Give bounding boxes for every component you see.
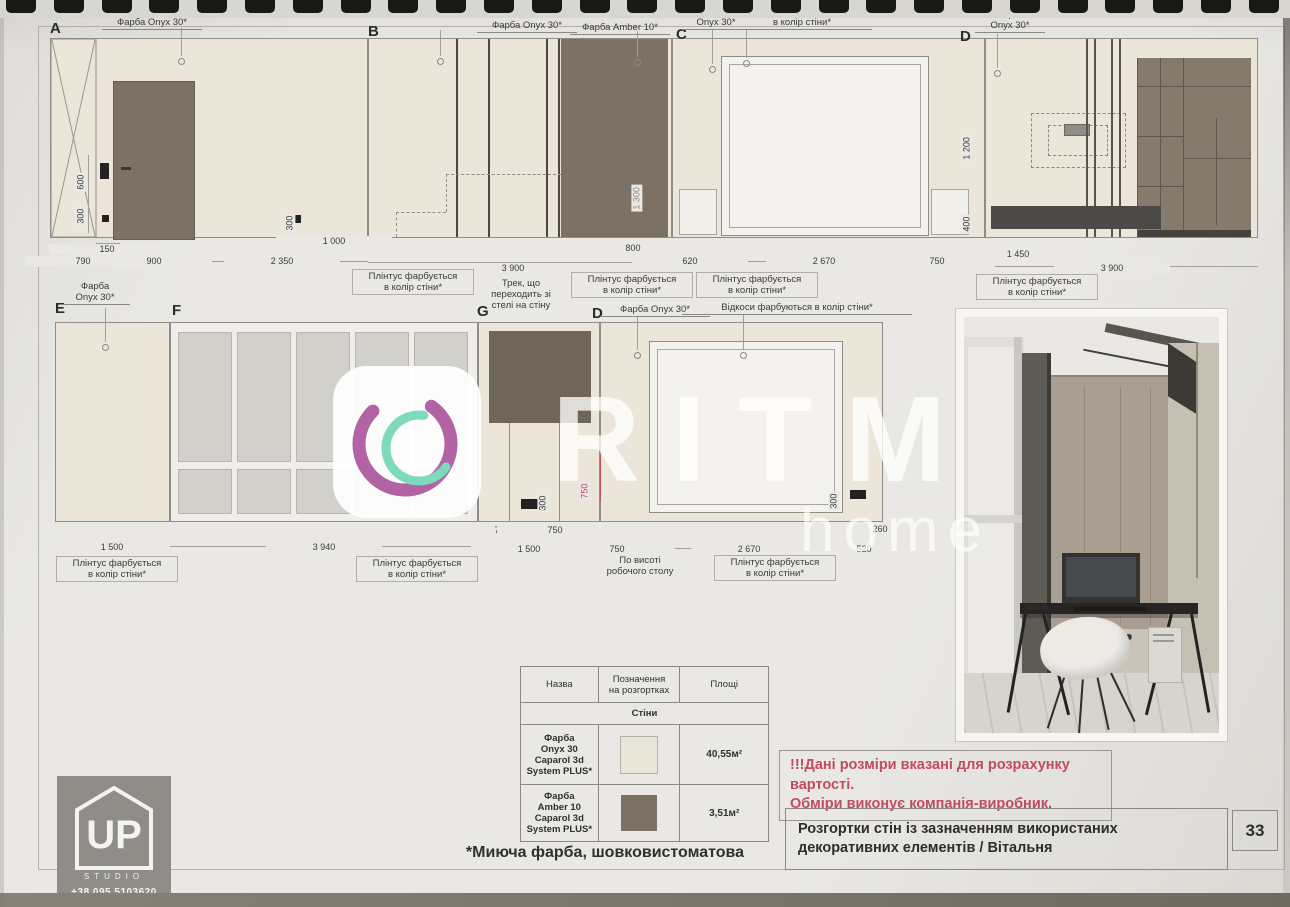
interior-photo [955,308,1228,742]
dim-label: 3 940 [266,542,382,553]
tv-console [991,206,1161,229]
dim-label: 750 [497,525,613,536]
leader-end-marker [994,70,1001,77]
elevation-b-drawing [368,38,672,238]
paint-label: Фарба Onyx 30* [477,20,577,33]
dim-label: 800 [575,243,691,254]
leader-end-marker [740,352,747,359]
binding-tab [723,0,753,13]
paint-label: Фарба Onyx 30* [60,281,130,305]
dashed-step [396,212,446,213]
door [113,81,195,240]
elevation-c-drawing [672,38,985,238]
dim-label: 750 [559,544,675,555]
callout-label: Плінтус фарбується в колір стіни* [571,272,693,298]
binding-tab [293,0,323,13]
callout-label: Плінтус фарбується в колір стіни* [696,272,818,298]
leader-end-marker [634,59,641,66]
table-header-name: Назва [521,667,599,702]
elevation-letter: D [960,28,971,46]
dimension-line [88,155,89,233]
callout-label: Плінтус фарбується в колір стіни* [976,274,1098,300]
swatch-amber [621,795,657,831]
binding-tab [1105,0,1135,13]
area-amber: 3,51м² [680,785,769,841]
scanned-sheet: RITM home [0,0,1290,907]
dimension-line [997,34,998,68]
binding-tab [771,0,801,13]
dashed-step [446,174,561,175]
dim-label-vertical: 300 [537,494,548,513]
elevation-letter: F [172,302,181,320]
paint-name-onyx: Фарба Onyx 30 Caparol 3d System PLUS* [521,725,599,784]
elevation-a-drawing [50,38,368,238]
paint-label: Фарба Onyx 30* [102,17,202,30]
table-header-area: Площі [680,667,769,702]
leader-end-marker [743,60,750,67]
warning-line-1: !!!Дані розміри вказані для розрахунку в… [790,756,1101,795]
sheet-title: Розгортки стін із зазначенням використан… [785,808,1228,870]
page-number: 33 [1232,810,1278,851]
binding-tab [341,0,371,13]
binding-tab [1249,0,1279,13]
sheet-title-text: Розгортки стін із зазначенням використан… [798,820,1215,858]
desk-edge [0,893,1290,907]
callout-label: Плінтус фарбується в колір стіни* [356,556,478,582]
page-edge-shadow [0,0,4,907]
callout-label: Плінтус фарбується в колір стіни* [352,269,474,295]
watermark-brand-text: RITM [552,378,978,500]
elevation-d-top-drawing [985,38,1258,238]
logo-studio-text: STUDIO [84,872,144,881]
binding-tab [1058,0,1088,13]
photo-monitor-screen [1066,557,1136,597]
leader-end-marker [709,66,716,73]
binding-tab [245,0,275,13]
dim-label-vertical: 600 [75,173,86,192]
niche-left [679,189,717,235]
leader-end-marker [102,344,109,351]
svg-text:UP: UP [86,813,142,857]
socket [100,163,109,179]
dimension-line [743,314,744,350]
binding-tab [436,0,466,13]
paint-footnote: *Миюча фарба, шовковистоматова [440,844,770,862]
leader-end-marker [437,58,444,65]
binding-tab [627,0,657,13]
dashed-step [446,174,447,212]
binding-tab [1153,0,1183,13]
wall-slat-line [558,39,560,237]
window-opening [721,56,929,236]
dimension-line [181,28,182,56]
binding-tab [484,0,514,13]
binding-tab [149,0,179,13]
wall-slat-line [456,39,458,237]
binding-tab [914,0,944,13]
photo-scene [964,317,1219,733]
elevation-letter: A [50,20,61,38]
dimension-line [712,30,713,64]
dim-label-vertical: 300 [284,214,295,233]
binding-tab [819,0,849,13]
up-studio-logo: UP STUDIO +38 095 5103620 [57,776,171,907]
elevation-letter: B [368,23,379,41]
binding-tab [6,0,36,13]
dim-label: 1 500 [54,542,170,553]
door-handle [121,167,131,170]
dim-label: 2 350 [224,256,340,267]
table-header-symbol: Позначення на розгортках [599,667,681,702]
binding-tab [532,0,562,13]
spiral-binding [0,0,1290,18]
paint-name-amber: Фарба Amber 10 Caparol 3d System PLUS* [521,785,599,841]
dim-label-vertical: 1 300 [631,185,642,212]
binding-tab [962,0,992,13]
paint-label: Відкоси фарбуються в колір стіни* [682,302,912,315]
dim-label: 2 670 [766,256,882,267]
dimension-line [440,30,441,56]
binding-tab [102,0,132,13]
dim-label-vertical: 300 [75,207,86,226]
dim-label: 150 [49,244,165,255]
dim-label-vertical: 400 [961,215,972,234]
photo-keyboard [1074,607,1146,611]
dimension-line [105,308,106,342]
binding-tab [1010,0,1040,13]
wall-slat-line [546,39,548,237]
shaft-x-brace [51,39,97,237]
ritm-logo-watermark [333,366,481,518]
dim-label-vertical: 1 200 [961,135,972,162]
amber-paint-panel [561,39,668,237]
dim-label: 2 670 [691,544,807,555]
leader-end-marker [634,352,641,359]
page-edge-shadow [1283,0,1290,907]
binding-tab [866,0,896,13]
binding-tab [675,0,705,13]
binding-tab [580,0,610,13]
dimension-line [637,316,638,350]
watermark-sub-text: home [800,500,991,562]
binding-tab [54,0,84,13]
dim-label: 1 000 [276,236,392,247]
area-onyx: 40,55м² [680,725,769,784]
callout-label: Плінтус фарбується в колір стіни* [56,556,178,582]
socket [102,215,109,222]
dim-label: 620 [632,256,748,267]
binding-tab [388,0,418,13]
note-label: Трек, що переходить зі стелі на стіну [465,278,577,312]
table-section-walls: Стіни [521,703,769,724]
leader-end-marker [178,58,185,65]
up-house-icon: UP [75,786,153,870]
binding-tab [1201,0,1231,13]
note-label: По висоті робочого столу [584,555,696,577]
wall-slat-line [488,39,490,237]
dim-label: 900 [96,256,212,267]
elevation-e-drawing [55,322,170,522]
dim-label: 1 450 [960,249,1076,260]
swatch-onyx [620,736,658,774]
paint-areas-table: Назва Позначення на розгортках Площі Сті… [520,666,769,842]
dashed-step [396,212,397,237]
dim-label: 3 900 [1054,263,1170,274]
paint-label: Фарба Amber 10* [570,22,670,35]
dimension-line [746,30,747,58]
binding-tab [197,0,227,13]
